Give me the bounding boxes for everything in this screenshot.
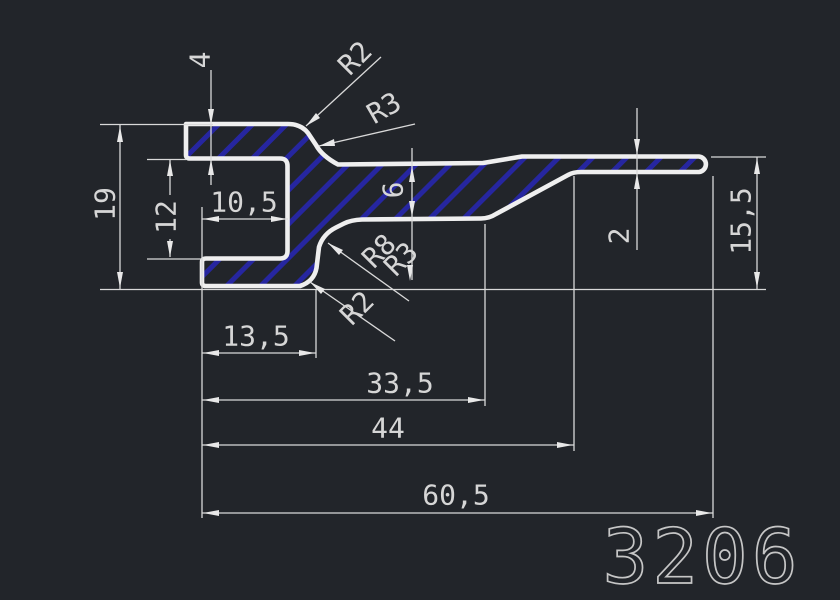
dim-value: 4	[184, 52, 217, 69]
dim-value: 15,5	[725, 187, 758, 254]
dim-value: 10,5	[210, 186, 277, 219]
dim-value: 44	[371, 412, 405, 445]
dim-slot-depth-10-5: 10,5	[202, 186, 288, 223]
dim-value: 60,5	[422, 479, 489, 512]
dim-value: 19	[89, 187, 122, 221]
part-number-label: 3206	[602, 512, 801, 600]
dim-value: 6	[377, 182, 410, 199]
dim-value: 33,5	[366, 367, 433, 400]
drawing-background	[0, 0, 840, 600]
dim-value: 2	[603, 228, 636, 245]
cad-drawing-canvas: 4 19 12 10,5 6 R3 2	[0, 0, 840, 600]
dim-value: 12	[150, 200, 183, 234]
dim-value: 13,5	[222, 320, 289, 353]
